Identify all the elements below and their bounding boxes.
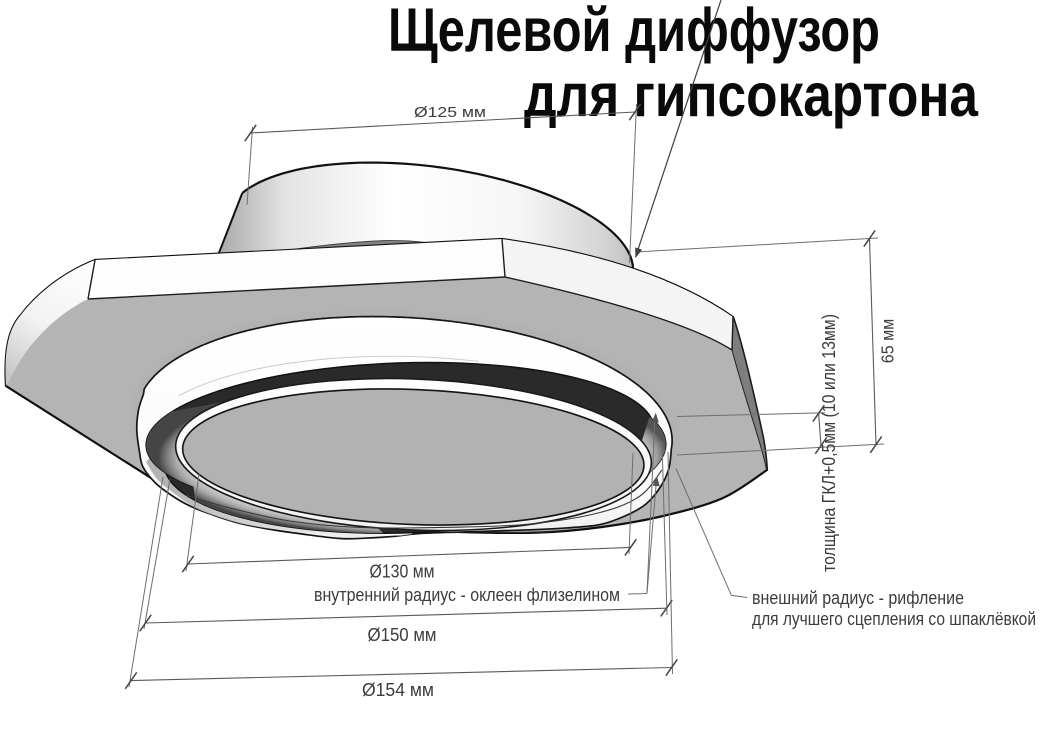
svg-text:Ø150 мм: Ø150 мм xyxy=(368,625,437,645)
svg-text:Ø125 мм: Ø125 мм xyxy=(414,104,486,121)
svg-text:толщина ГКЛ+0,5мм (10 или 13мм: толщина ГКЛ+0,5мм (10 или 13мм) xyxy=(819,314,839,572)
svg-text:65 мм: 65 мм xyxy=(878,319,898,364)
svg-text:для гипсокартона: для гипсокартона xyxy=(524,61,979,129)
svg-text:Ø154 мм: Ø154 мм xyxy=(362,680,434,700)
svg-text:для лучшего сцепления со шпакл: для лучшего сцепления со шпаклёвкой xyxy=(752,609,1036,629)
svg-text:Ø130 мм: Ø130 мм xyxy=(370,562,435,582)
svg-text:Щелевой диффузор: Щелевой диффузор xyxy=(388,0,880,64)
svg-text:внешний радиус - рифление: внешний радиус - рифление xyxy=(752,588,964,608)
svg-text:внутренний радиус - оклеен фли: внутренний радиус - оклеен флизелином xyxy=(314,585,620,605)
